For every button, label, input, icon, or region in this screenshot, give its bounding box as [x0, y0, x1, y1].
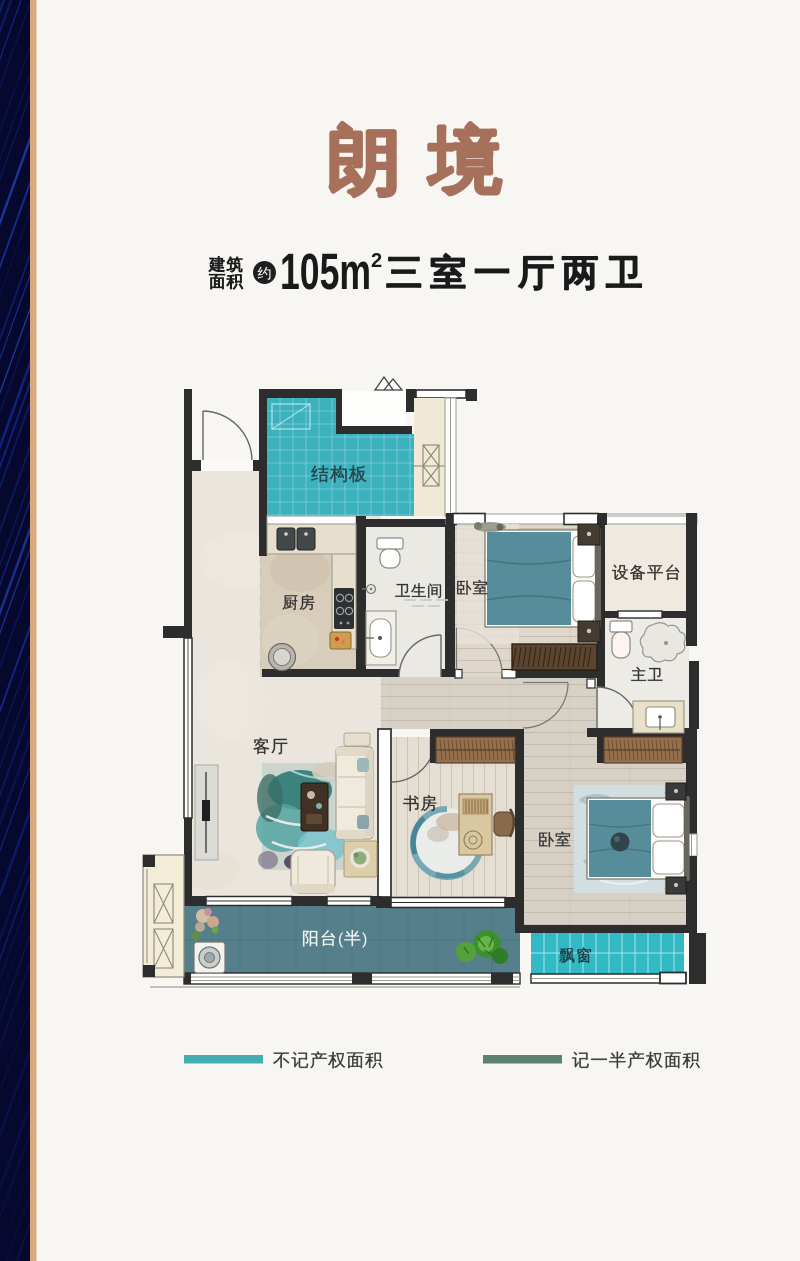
- svg-text:): ): [362, 931, 367, 948]
- svg-text:105m: 105m: [280, 243, 371, 300]
- svg-text:(: (: [338, 931, 344, 948]
- svg-text:2: 2: [371, 250, 382, 272]
